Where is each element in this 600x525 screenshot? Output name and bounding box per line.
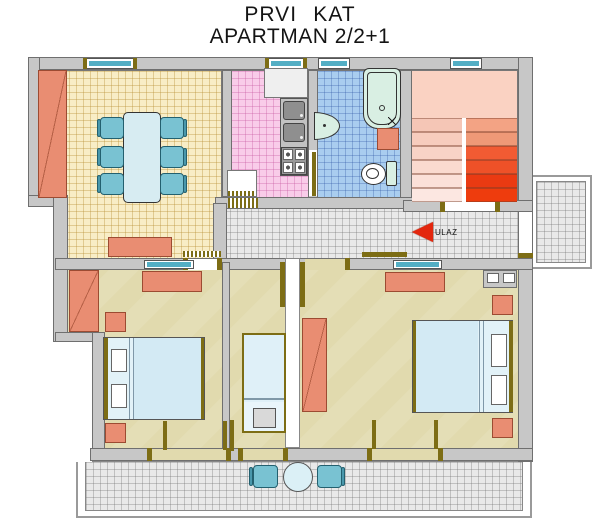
door-leaf — [163, 421, 167, 450]
dining-chair-back — [183, 119, 187, 137]
entrance-arrow-icon — [412, 222, 433, 242]
title-line-2: APARTMAN 2/2+1 — [0, 26, 600, 47]
bed-frame-line — [129, 338, 130, 419]
shelf-box — [487, 273, 499, 283]
balcony-chair-left — [253, 465, 278, 488]
sink-drain — [300, 136, 303, 139]
staircase-right-flight — [466, 118, 517, 202]
bed-frame-line — [483, 321, 484, 412]
door-opening-entrance — [445, 201, 495, 211]
bedroom-1-nightstand — [105, 312, 126, 332]
sideboard — [108, 237, 172, 257]
bedroom-3-nightstand — [492, 295, 513, 315]
door-leaf — [230, 420, 234, 451]
exterior-notch-2 — [28, 342, 92, 462]
door-jamb — [438, 448, 443, 461]
side-balcony — [530, 175, 592, 269]
bathtub-faucet — [388, 117, 396, 125]
bed-headboard — [509, 321, 513, 412]
dining-chair-back — [97, 148, 101, 166]
bedroom-3-door-leaf — [362, 252, 407, 257]
dining-chair — [100, 146, 124, 168]
dining-table — [123, 112, 161, 203]
dining-chair-back — [97, 175, 101, 193]
bedroom-1-wardrobe — [69, 270, 99, 332]
door-leaf — [434, 420, 438, 449]
bed-blanket — [134, 338, 201, 419]
bedroom-2-single-bed — [242, 333, 286, 433]
kitchen-door-threshold — [228, 191, 256, 196]
door-opening-side-balcony — [519, 209, 532, 253]
toilet-bowl — [366, 168, 379, 179]
bed-footboard — [201, 338, 204, 419]
door-jamb — [345, 258, 350, 270]
stair-step — [466, 146, 517, 160]
page-title: PRVI KAT APARTMAN 2/2+1 — [0, 4, 600, 47]
dining-chair — [100, 173, 124, 195]
bedroom-3-window-glass — [396, 262, 439, 267]
bedroom-3-dresser — [385, 272, 445, 292]
bed-frame-line — [479, 321, 480, 412]
exterior-notch — [28, 207, 54, 263]
stair-step — [466, 174, 517, 188]
bathtub — [363, 68, 401, 129]
kitchen-counter — [264, 68, 308, 98]
window-jamb — [133, 58, 137, 69]
door-opening-bedroom-3 — [305, 259, 350, 270]
bathtub-drain — [379, 105, 385, 111]
bed-frame-line — [244, 398, 284, 400]
pillow — [111, 384, 127, 408]
stair-step — [412, 160, 462, 174]
pillow — [111, 349, 127, 372]
bedroom-3-nightstand — [492, 418, 513, 438]
toilet-tank — [386, 161, 397, 186]
washing-machine — [377, 128, 399, 150]
stair-step — [412, 146, 462, 160]
bathroom-door-leaf — [312, 152, 316, 196]
dining-chair — [160, 173, 184, 195]
door-jamb — [367, 448, 372, 461]
pillow — [491, 334, 507, 367]
burner — [295, 149, 305, 160]
bed-headboard — [104, 338, 108, 419]
bathroom-sink-drain — [323, 124, 326, 127]
bed-end-table — [253, 408, 276, 428]
bed-blanket — [416, 321, 478, 412]
stair-step — [412, 132, 462, 146]
title-line-1: PRVI KAT — [0, 4, 600, 26]
balcony-door-bedroom-2 — [243, 449, 283, 460]
bedroom-1-dresser — [142, 271, 202, 292]
side-balcony-tiles — [536, 181, 586, 263]
stair-step — [412, 174, 462, 188]
bedroom-2-door-leaf — [280, 262, 285, 307]
dining-chair-back — [183, 175, 187, 193]
balcony-door-bedroom-1 — [152, 449, 226, 460]
dining-chair — [100, 117, 124, 139]
door-jamb — [300, 262, 305, 307]
door-opening-kitchen — [228, 198, 258, 208]
burner — [295, 162, 305, 173]
dining-cabinet — [38, 70, 67, 198]
kitchen-sink — [283, 123, 305, 142]
balcony-door-bedroom-3 — [372, 449, 438, 460]
shelf-box — [503, 273, 515, 283]
stair-step — [412, 188, 462, 202]
wall-bedroom2-bedroom3 — [285, 258, 300, 448]
stair-step — [466, 132, 517, 146]
stair-step — [466, 188, 517, 202]
bedroom-1-double-bed — [103, 337, 205, 420]
wall-bath-stairs — [400, 70, 412, 203]
bathroom-window-glass — [321, 61, 347, 66]
kitchen-window-glass — [271, 61, 301, 66]
stair-step — [412, 118, 462, 132]
kitchen-sink — [283, 101, 305, 120]
door-jamb — [238, 448, 243, 461]
bedroom-3-wardrobe — [302, 318, 327, 412]
dining-chair — [160, 146, 184, 168]
door-jamb — [283, 448, 288, 461]
door-leaf — [372, 420, 376, 449]
entrance-label: ULAZ — [435, 228, 457, 237]
stair-step — [466, 160, 517, 174]
dining-window-glass — [89, 61, 131, 66]
bedroom-1-window-glass — [147, 262, 191, 267]
balcony-chair-right-back — [341, 467, 345, 486]
door-leaf — [223, 421, 227, 450]
balcony-table — [283, 462, 313, 492]
staircase-left-flight — [412, 118, 462, 202]
bedroom-1-nightstand — [105, 423, 126, 443]
door-jamb — [147, 448, 152, 461]
dining-chair — [160, 117, 184, 139]
dining-chair-back — [183, 148, 187, 166]
dining-chair-back — [97, 119, 101, 137]
bedroom-3-double-bed — [412, 320, 513, 413]
sink-drain — [300, 114, 303, 117]
threshold-dining-bedroom1 — [183, 251, 221, 257]
stair-step — [466, 118, 517, 132]
balcony-chair-left-back — [249, 467, 253, 486]
pillow — [491, 375, 507, 405]
stairs-window-glass — [453, 61, 479, 66]
balcony-chair-right — [317, 465, 342, 488]
burner — [283, 149, 293, 160]
window-jamb — [83, 58, 87, 69]
burner — [283, 162, 293, 173]
